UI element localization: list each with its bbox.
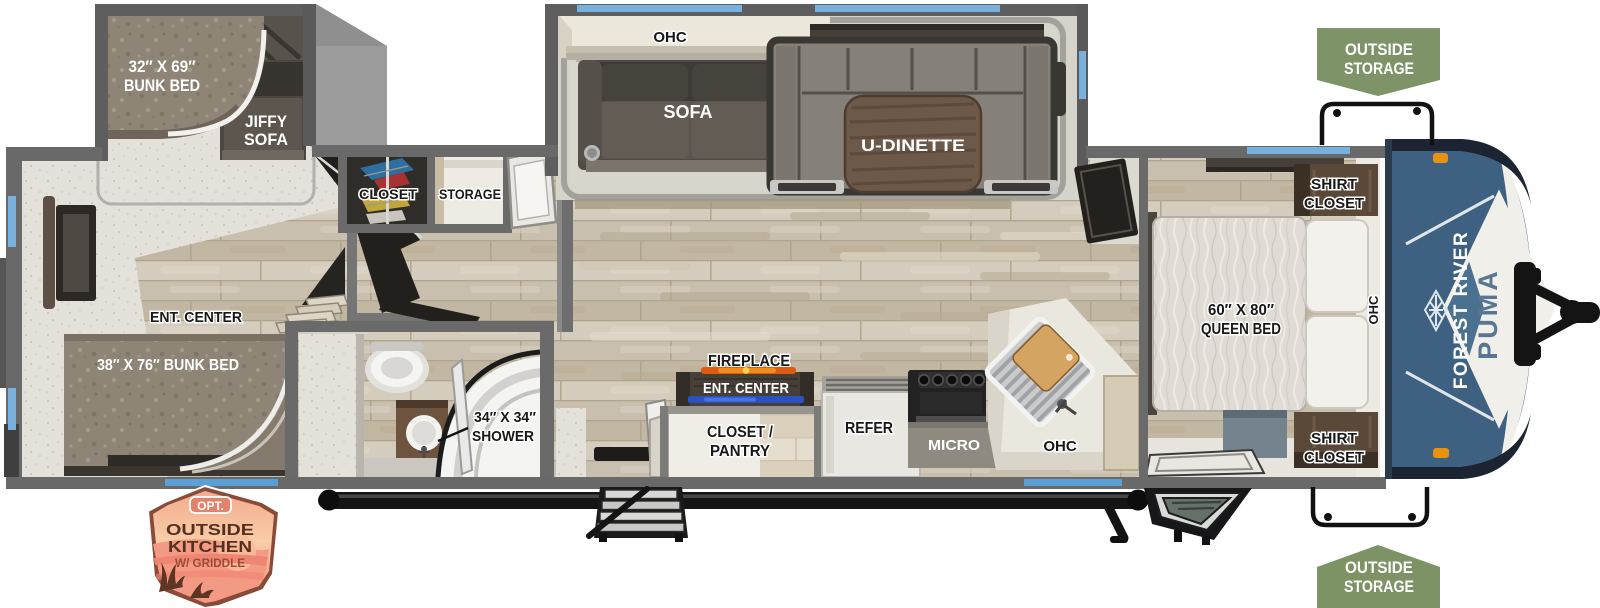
svg-text:W/ GRIDDLE: W/ GRIDDLE <box>175 556 245 570</box>
svg-text:PANTRY: PANTRY <box>710 443 770 460</box>
svg-text:BUNK BED: BUNK BED <box>124 76 200 95</box>
svg-text:OHC: OHC <box>653 29 687 46</box>
svg-text:ENT. CENTER: ENT. CENTER <box>703 380 789 397</box>
svg-text:PUMA: PUMA <box>1473 268 1503 360</box>
svg-text:U-DINETTE: U-DINETTE <box>861 136 965 155</box>
svg-text:STORAGE: STORAGE <box>1344 59 1414 78</box>
svg-text:SHIRT: SHIRT <box>1311 176 1357 193</box>
svg-text:SHOWER: SHOWER <box>472 428 534 445</box>
svg-text:STORAGE: STORAGE <box>1344 577 1414 596</box>
svg-text:QUEEN BED: QUEEN BED <box>1201 321 1281 338</box>
svg-text:SOFA: SOFA <box>663 102 712 122</box>
svg-text:ENT. CENTER: ENT. CENTER <box>150 309 242 326</box>
svg-text:SHIRT: SHIRT <box>1311 430 1357 447</box>
svg-text:REFER: REFER <box>845 420 893 437</box>
svg-text:CLOSET: CLOSET <box>1304 449 1364 466</box>
svg-text:34″ X 34″: 34″ X 34″ <box>474 409 536 426</box>
svg-text:SOFA: SOFA <box>244 130 288 149</box>
svg-text:CLOSET: CLOSET <box>1304 195 1364 212</box>
svg-text:JIFFY: JIFFY <box>245 112 288 131</box>
svg-text:CLOSET /: CLOSET / <box>707 424 773 441</box>
svg-text:OUTSIDE: OUTSIDE <box>1345 40 1413 59</box>
svg-text:38″ X 76″ BUNK BED: 38″ X 76″ BUNK BED <box>97 357 239 374</box>
svg-text:OHC: OHC <box>1366 295 1381 325</box>
svg-text:OUTSIDE: OUTSIDE <box>1345 558 1413 577</box>
svg-text:CLOSET: CLOSET <box>359 186 417 202</box>
svg-text:32″ X 69″: 32″ X 69″ <box>129 57 196 76</box>
svg-text:MICRO: MICRO <box>928 437 980 454</box>
svg-text:FOREST RIVER: FOREST RIVER <box>1451 231 1472 389</box>
svg-text:STORAGE: STORAGE <box>439 186 501 202</box>
svg-text:OHC: OHC <box>1043 438 1077 455</box>
svg-text:60″ X 80″: 60″ X 80″ <box>1208 302 1274 319</box>
svg-text:OPT.: OPT. <box>197 499 224 513</box>
svg-text:KITCHEN: KITCHEN <box>168 539 252 556</box>
svg-text:OUTSIDE: OUTSIDE <box>166 522 254 539</box>
